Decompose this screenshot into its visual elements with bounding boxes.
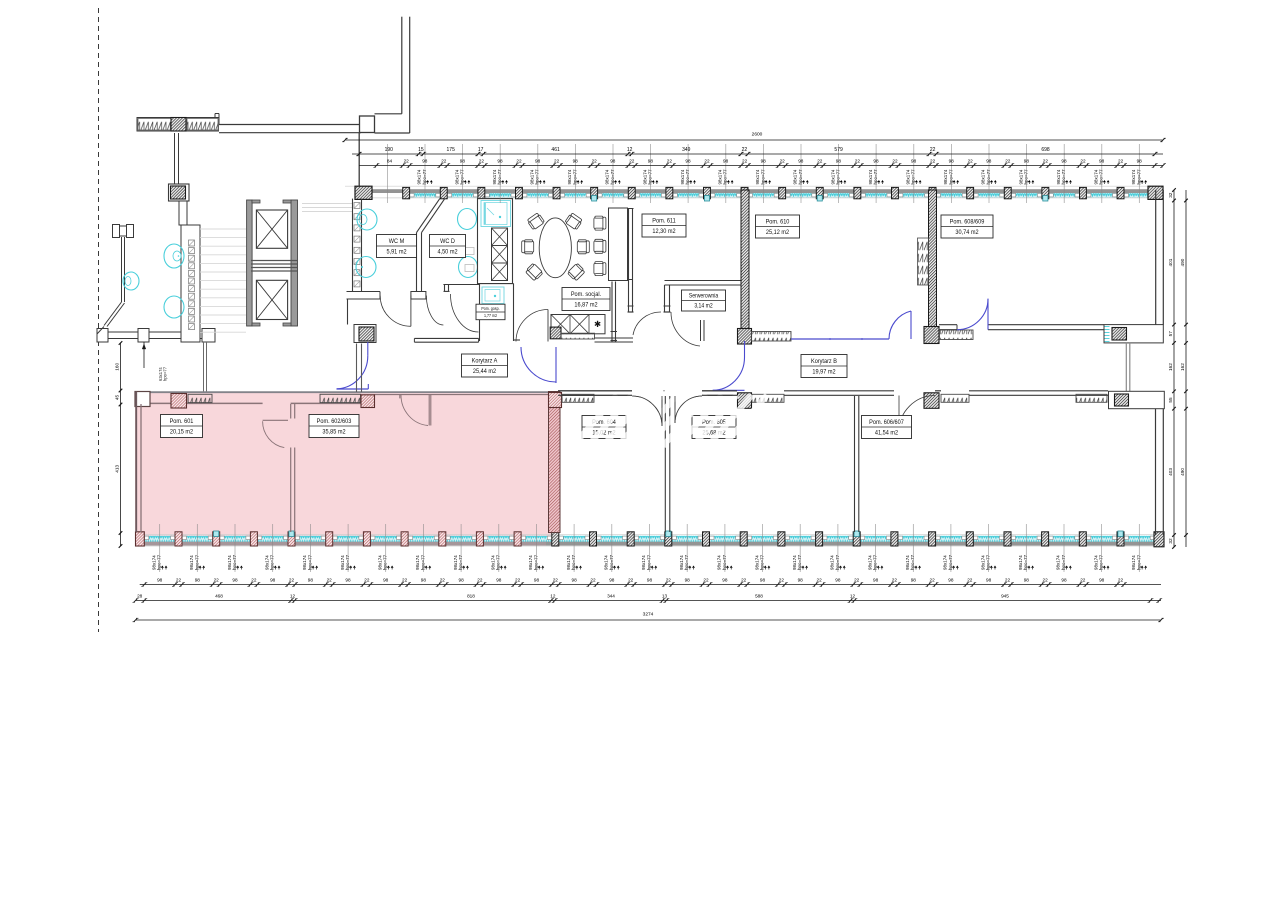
svg-text:WC M: WC M	[389, 237, 404, 245]
svg-text:22: 22	[667, 159, 673, 164]
svg-text:hpo=77: hpo=77	[1136, 554, 1141, 570]
svg-text:98: 98	[1061, 159, 1067, 164]
svg-text:98: 98	[609, 578, 615, 583]
svg-text:98: 98	[1099, 578, 1105, 583]
svg-text:22: 22	[402, 578, 408, 583]
svg-text:hpo=77: hpo=77	[609, 554, 614, 570]
svg-text:22: 22	[251, 578, 257, 583]
svg-text:28: 28	[137, 594, 143, 599]
svg-text:hpo=77: hpo=77	[948, 169, 953, 185]
svg-text:22: 22	[1005, 578, 1011, 583]
svg-text:22: 22	[780, 159, 786, 164]
svg-text:22: 22	[1080, 159, 1086, 164]
svg-text:22: 22	[214, 578, 220, 583]
svg-text:Pom. 601: Pom. 601	[170, 417, 194, 425]
svg-text:98: 98	[761, 159, 767, 164]
svg-text:hpo=77: hpo=77	[835, 554, 840, 570]
svg-text:22: 22	[364, 578, 370, 583]
svg-text:Pom. 606/607: Pom. 606/607	[869, 418, 904, 426]
svg-text:98: 98	[232, 578, 238, 583]
svg-text:403: 403	[1168, 468, 1173, 476]
svg-text:175: 175	[447, 147, 456, 153]
svg-text:hpo=77: hpo=77	[458, 554, 463, 570]
svg-text:hpo=77: hpo=77	[232, 554, 237, 570]
svg-text:162: 162	[1168, 363, 1173, 371]
svg-text:hpo=77: hpo=77	[760, 169, 765, 185]
svg-text:461: 461	[551, 147, 560, 153]
svg-text:22: 22	[1118, 578, 1124, 583]
svg-text:413: 413	[115, 465, 120, 473]
svg-text:98: 98	[383, 578, 389, 583]
svg-text:13: 13	[662, 594, 668, 599]
svg-text:hpo=77: hpo=77	[1061, 169, 1066, 185]
svg-text:84: 84	[387, 159, 393, 164]
svg-text:98: 98	[308, 578, 314, 583]
svg-text:15: 15	[418, 147, 424, 153]
svg-text:Pom. 608/609: Pom. 608/609	[950, 218, 985, 226]
svg-text:401: 401	[1168, 258, 1173, 266]
svg-text:98: 98	[647, 578, 653, 583]
svg-text:98: 98	[460, 159, 466, 164]
svg-text:22: 22	[742, 147, 748, 153]
svg-text:22: 22	[1042, 578, 1048, 583]
svg-text:22: 22	[441, 159, 447, 164]
svg-text:hpo=77: hpo=77	[760, 554, 765, 570]
svg-text:22: 22	[703, 578, 709, 583]
svg-text:98: 98	[458, 578, 464, 583]
svg-text:hpo=77: hpo=77	[948, 554, 953, 570]
svg-text:945: 945	[1001, 594, 1009, 599]
svg-text:22: 22	[515, 578, 521, 583]
svg-text:98: 98	[648, 159, 654, 164]
svg-text:Pom. 602/603: Pom. 602/603	[317, 417, 352, 425]
svg-text:12: 12	[290, 594, 296, 599]
svg-text:22: 22	[477, 578, 483, 583]
svg-text:3,14 m2: 3,14 m2	[694, 303, 712, 310]
svg-text:hpo=77: hpo=77	[610, 169, 615, 185]
svg-text:22: 22	[440, 578, 446, 583]
svg-text:98: 98	[798, 578, 804, 583]
svg-text:hpo=77: hpo=77	[1023, 554, 1028, 570]
svg-text:hpo=77: hpo=77	[157, 554, 162, 570]
svg-text:hpo=77: hpo=77	[684, 554, 689, 570]
svg-text:98: 98	[911, 159, 917, 164]
svg-text:1,77 m2: 1,77 m2	[484, 313, 498, 318]
svg-text:98: 98	[722, 578, 728, 583]
svg-text:22: 22	[929, 578, 935, 583]
svg-text:hpo=77: hpo=77	[497, 169, 502, 185]
svg-text:98: 98	[1024, 578, 1030, 583]
svg-text:22: 22	[817, 159, 823, 164]
svg-text:hpo=77: hpo=77	[307, 554, 312, 570]
svg-text:41,54 m2: 41,54 m2	[875, 429, 899, 437]
svg-text:22: 22	[289, 578, 295, 583]
svg-text:22: 22	[892, 159, 898, 164]
svg-text:160: 160	[115, 363, 120, 371]
svg-text:hpo=77: hpo=77	[911, 169, 916, 185]
svg-text:57: 57	[1168, 331, 1173, 337]
svg-text:98: 98	[760, 578, 766, 583]
svg-text:698: 698	[1041, 147, 1050, 153]
svg-text:12: 12	[850, 594, 856, 599]
svg-text:344: 344	[607, 594, 615, 599]
svg-text:22: 22	[1118, 159, 1124, 164]
svg-text:98: 98	[421, 578, 427, 583]
svg-text:hpo=77: hpo=77	[873, 554, 878, 570]
svg-text:22: 22	[816, 578, 822, 583]
svg-text:hpo=77: hpo=77	[194, 554, 199, 570]
svg-text:22: 22	[553, 578, 559, 583]
svg-text:25,44 m2: 25,44 m2	[473, 368, 497, 376]
svg-text:22: 22	[741, 578, 747, 583]
svg-text:5,91 m2: 5,91 m2	[386, 248, 407, 256]
svg-text:98: 98	[986, 159, 992, 164]
svg-text:30,74 m2: 30,74 m2	[955, 229, 979, 237]
svg-text:12: 12	[550, 594, 556, 599]
svg-text:98: 98	[270, 578, 276, 583]
svg-text:98: 98	[1137, 159, 1143, 164]
svg-text:4,50 m2: 4,50 m2	[437, 248, 458, 256]
svg-text:22: 22	[855, 159, 861, 164]
svg-text:98: 98	[1024, 159, 1030, 164]
svg-text:hpo=77: hpo=77	[685, 169, 690, 185]
svg-text:349: 349	[682, 147, 691, 153]
svg-text:hpo=77: hpo=77	[163, 366, 168, 381]
svg-text:hpo=77: hpo=77	[460, 169, 465, 185]
svg-text:hpo=77: hpo=77	[986, 554, 991, 570]
svg-text:22: 22	[742, 159, 748, 164]
svg-text:hpo=77: hpo=77	[1061, 554, 1066, 570]
svg-text:hpo=77: hpo=77	[571, 554, 576, 570]
svg-text:22: 22	[629, 159, 635, 164]
svg-text:12,30 m2: 12,30 m2	[652, 228, 676, 236]
svg-text:22: 22	[930, 147, 936, 153]
svg-text:35,85 m2: 35,85 m2	[322, 428, 346, 436]
svg-text:22: 22	[967, 578, 973, 583]
svg-text:hpo=77: hpo=77	[986, 169, 991, 185]
svg-text:98: 98	[571, 578, 577, 583]
svg-text:hpo=77: hpo=77	[345, 554, 350, 570]
svg-text:190: 190	[385, 147, 394, 153]
svg-text:hpo=77: hpo=77	[1099, 169, 1104, 185]
svg-text:32: 32	[1168, 192, 1173, 198]
svg-text:Pom. socjal.: Pom. socjal.	[571, 290, 602, 298]
svg-text:22: 22	[779, 578, 785, 583]
svg-text:98: 98	[610, 159, 616, 164]
svg-text:hpo=77: hpo=77	[533, 554, 538, 570]
svg-text:hpo=77: hpo=77	[1136, 169, 1141, 185]
svg-text:98: 98	[873, 578, 879, 583]
svg-text:579: 579	[834, 147, 843, 153]
svg-text:98: 98	[573, 159, 579, 164]
svg-text:22: 22	[404, 159, 410, 164]
svg-text:hpo=77: hpo=77	[496, 554, 501, 570]
svg-text:Pom. 610: Pom. 610	[766, 218, 790, 226]
svg-text:98: 98	[345, 578, 351, 583]
svg-text:hpo=77: hpo=77	[798, 169, 803, 185]
svg-text:WC D: WC D	[440, 237, 455, 245]
svg-text:98: 98	[157, 578, 163, 583]
svg-text:Korytarz A: Korytarz A	[472, 357, 498, 365]
svg-text:✱: ✱	[594, 319, 601, 329]
svg-text:98: 98	[1061, 578, 1067, 583]
svg-text:hpo=77: hpo=77	[723, 169, 728, 185]
svg-text:Korytarz B: Korytarz B	[811, 357, 837, 365]
svg-text:22: 22	[628, 578, 634, 583]
svg-text:Pom. gosp.: Pom. gosp.	[481, 305, 499, 310]
svg-text:32: 32	[1168, 538, 1173, 544]
svg-text:22: 22	[704, 159, 710, 164]
svg-text:16,87 m2: 16,87 m2	[574, 301, 598, 309]
svg-text:162: 162	[1180, 363, 1185, 371]
svg-text:hpo=77: hpo=77	[910, 554, 915, 570]
svg-text:22: 22	[968, 159, 974, 164]
svg-text:22: 22	[892, 578, 898, 583]
svg-text:19,97 m2: 19,97 m2	[812, 368, 836, 376]
svg-text:98: 98	[873, 159, 879, 164]
svg-text:hpo=77: hpo=77	[873, 169, 878, 185]
svg-text:22: 22	[1080, 578, 1086, 583]
svg-text:98: 98	[949, 159, 955, 164]
svg-text:98: 98	[723, 159, 729, 164]
svg-text:98: 98	[535, 159, 541, 164]
svg-text:hpo=77: hpo=77	[1024, 169, 1029, 185]
svg-text:468: 468	[215, 594, 223, 599]
svg-text:98: 98	[422, 159, 428, 164]
svg-text:588: 588	[755, 594, 763, 599]
svg-text:22: 22	[930, 159, 936, 164]
svg-text:98: 98	[1099, 159, 1105, 164]
svg-text:98: 98	[534, 578, 540, 583]
svg-text:818: 818	[467, 594, 475, 599]
svg-text:12: 12	[627, 147, 633, 153]
svg-text:98: 98	[685, 159, 691, 164]
svg-text:25,12 m2: 25,12 m2	[766, 229, 790, 237]
svg-text:98: 98	[195, 578, 201, 583]
svg-text:22: 22	[554, 159, 560, 164]
svg-text:98: 98	[685, 578, 691, 583]
svg-text:hpo=77: hpo=77	[383, 554, 388, 570]
svg-text:98: 98	[948, 578, 954, 583]
svg-text:22: 22	[1005, 159, 1011, 164]
svg-text:3274: 3274	[643, 612, 654, 618]
svg-text:45: 45	[115, 395, 120, 401]
svg-text:22: 22	[1043, 159, 1049, 164]
svg-text:98: 98	[798, 159, 804, 164]
svg-text:98: 98	[496, 578, 502, 583]
svg-text:17: 17	[478, 147, 484, 153]
svg-text:hpo=77: hpo=77	[535, 169, 540, 185]
svg-text:22: 22	[176, 578, 182, 583]
svg-text:hpo=77: hpo=77	[420, 554, 425, 570]
svg-text:490: 490	[1180, 258, 1185, 266]
svg-text:hpo=77: hpo=77	[797, 554, 802, 570]
svg-text:98: 98	[497, 159, 503, 164]
svg-text:hpo=77: hpo=77	[270, 554, 275, 570]
svg-text:20,15 m2: 20,15 m2	[170, 428, 194, 436]
svg-text:Pom. 611: Pom. 611	[652, 217, 676, 225]
svg-text:hpo=77: hpo=77	[572, 169, 577, 185]
svg-text:22: 22	[327, 578, 333, 583]
svg-text:98: 98	[835, 578, 841, 583]
svg-text:hpo=77: hpo=77	[422, 169, 427, 185]
svg-text:Serwerownia: Serwerownia	[689, 293, 719, 300]
svg-text:22: 22	[479, 159, 485, 164]
svg-text:98: 98	[986, 578, 992, 583]
svg-text:hpo=77: hpo=77	[722, 554, 727, 570]
svg-text:hpo=77: hpo=77	[1099, 554, 1104, 570]
svg-text:22: 22	[592, 159, 598, 164]
svg-text:22: 22	[516, 159, 522, 164]
svg-text:hpo=77: hpo=77	[836, 169, 841, 185]
svg-text:490: 490	[1180, 468, 1185, 476]
svg-text:98: 98	[911, 578, 917, 583]
svg-text:hpo=77: hpo=77	[648, 169, 653, 185]
svg-text:22: 22	[854, 578, 860, 583]
svg-text:2600: 2600	[752, 132, 763, 138]
svg-text:22: 22	[666, 578, 672, 583]
svg-text:hpo=77: hpo=77	[646, 554, 651, 570]
svg-text:22: 22	[590, 578, 596, 583]
svg-text:55: 55	[1168, 397, 1173, 403]
svg-text:98: 98	[836, 159, 842, 164]
